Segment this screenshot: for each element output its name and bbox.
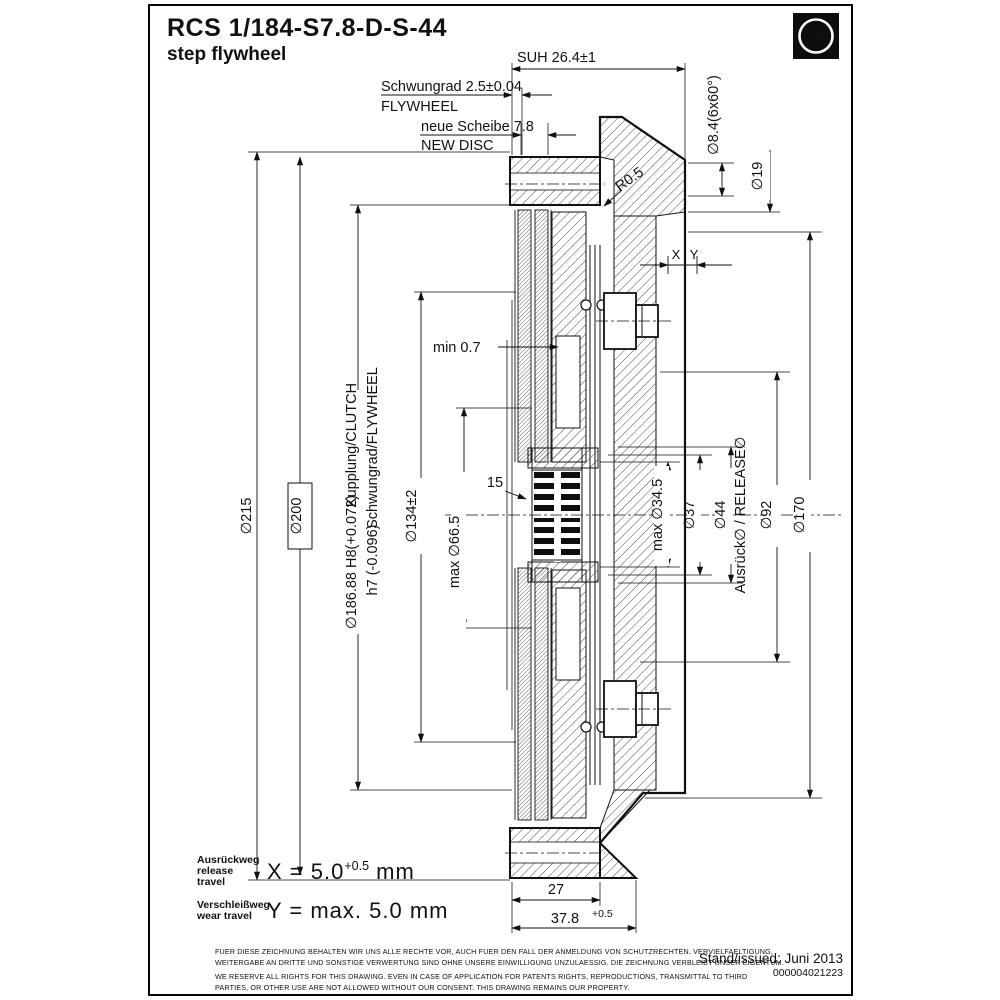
release-travel-label-en: release travel [197,866,259,888]
legal-notice: FUER DIESE ZEICHNUNG BEHALTEN WIR UNS AL… [215,946,715,993]
dim-d170-label: ∅170 [792,497,808,534]
dim-x-label: X [672,247,681,262]
issue-block: Stand/issued: Juni 2013 000004021223 [699,951,843,979]
dim-d134-label: ∅134±2 [404,490,420,543]
legal-line: WEITERGABE AN DRITTE UND SONSTIGE VERWER… [215,957,715,968]
release-travel-eq: X = 5.0 [267,859,344,884]
dim-378-label: 37.8 [551,911,579,927]
dim-d92-label: ∅92 [759,501,775,530]
dim-378-tolerance: +0.5 [592,908,613,920]
dim-flywheel-de-label: Schwungrad 2.5±0.04 [381,79,522,95]
title-block: RCS 1/184-S7.8-D-S-44 step flywheel [167,14,447,66]
legal-line: FUER DIESE ZEICHNUNG BEHALTEN WIR UNS AL… [215,946,715,957]
dim-clutch-label: Kupplung/CLUTCH [344,383,360,507]
dim-flywheel-fit-label: Schwungrad/FLYWHEEL [365,367,381,529]
zf-logo-graphic: ZF [793,13,839,59]
dim-d44-label: ∅44 [713,501,729,530]
wear-travel-note: Verschleißweg wear travel Y = max. 5.0 m… [197,898,448,924]
dim-d215-label: ∅215 [239,498,255,535]
wear-travel-label-en: wear travel [197,911,259,922]
release-travel-tolerance: +0.5 [344,859,369,873]
dim-flywheel-en-label: FLYWHEEL [381,99,458,115]
issue-date: Stand/issued: Juni 2013 [699,951,843,966]
dim-spline-15-label: 15 [487,475,503,491]
dim-d66-label: max ∅66.5 [447,516,463,588]
document-number: 000004021223 [699,967,843,979]
dim-h7-label: h7 (-0.096) [365,525,381,596]
dim-d19-label: ∅19 [750,162,766,191]
dim-y-label: Y [690,247,699,262]
legal-line: WE RESERVE ALL RIGHTS FOR THIS DRAWING. … [215,971,715,982]
dim-d200-label: ∅200 [289,498,305,535]
dim-new-disc-de-label: neue Scheibe 7.8 [421,119,534,135]
zf-logo: ZF [793,13,839,59]
dim-d37-label: ∅37 [682,501,698,530]
dim-d34-label: max ∅34.5 [650,479,666,551]
release-travel-unit: mm [376,859,415,884]
clutch-cross-section-drawing: SUH 26.4±1 Schwungrad 2.5±0.04 FLYWHEEL … [0,0,1000,1000]
dim-bolt-holes-label: ∅8.4(6x60°) [706,75,722,155]
release-travel-value: X = 5.0+0.5 mm [267,859,415,885]
drawing-subtitle: step flywheel [167,44,447,66]
dim-suh-label: SUH 26.4±1 [517,50,596,66]
dim-27-label: 27 [548,882,564,898]
dim-release-diameter-label: Ausrück∅ / RELEASE∅ [733,437,749,594]
dim-d186-label: ∅186.88 H8(+0.072) [344,495,360,629]
release-travel-note: Ausrückweg release travel X = 5.0+0.5 mm [197,855,415,888]
zf-logo-text: ZF [806,31,826,47]
dim-min07-label: min 0.7 [433,340,481,356]
wear-travel-value: Y = max. 5.0 mm [267,898,448,924]
drawing-number: RCS 1/184-S7.8-D-S-44 [167,14,447,43]
dim-new-disc-en-label: NEW DISC [421,138,494,154]
legal-line: PARTIES, OR OTHER USE ARE NOT ALLOWED WI… [215,982,715,993]
